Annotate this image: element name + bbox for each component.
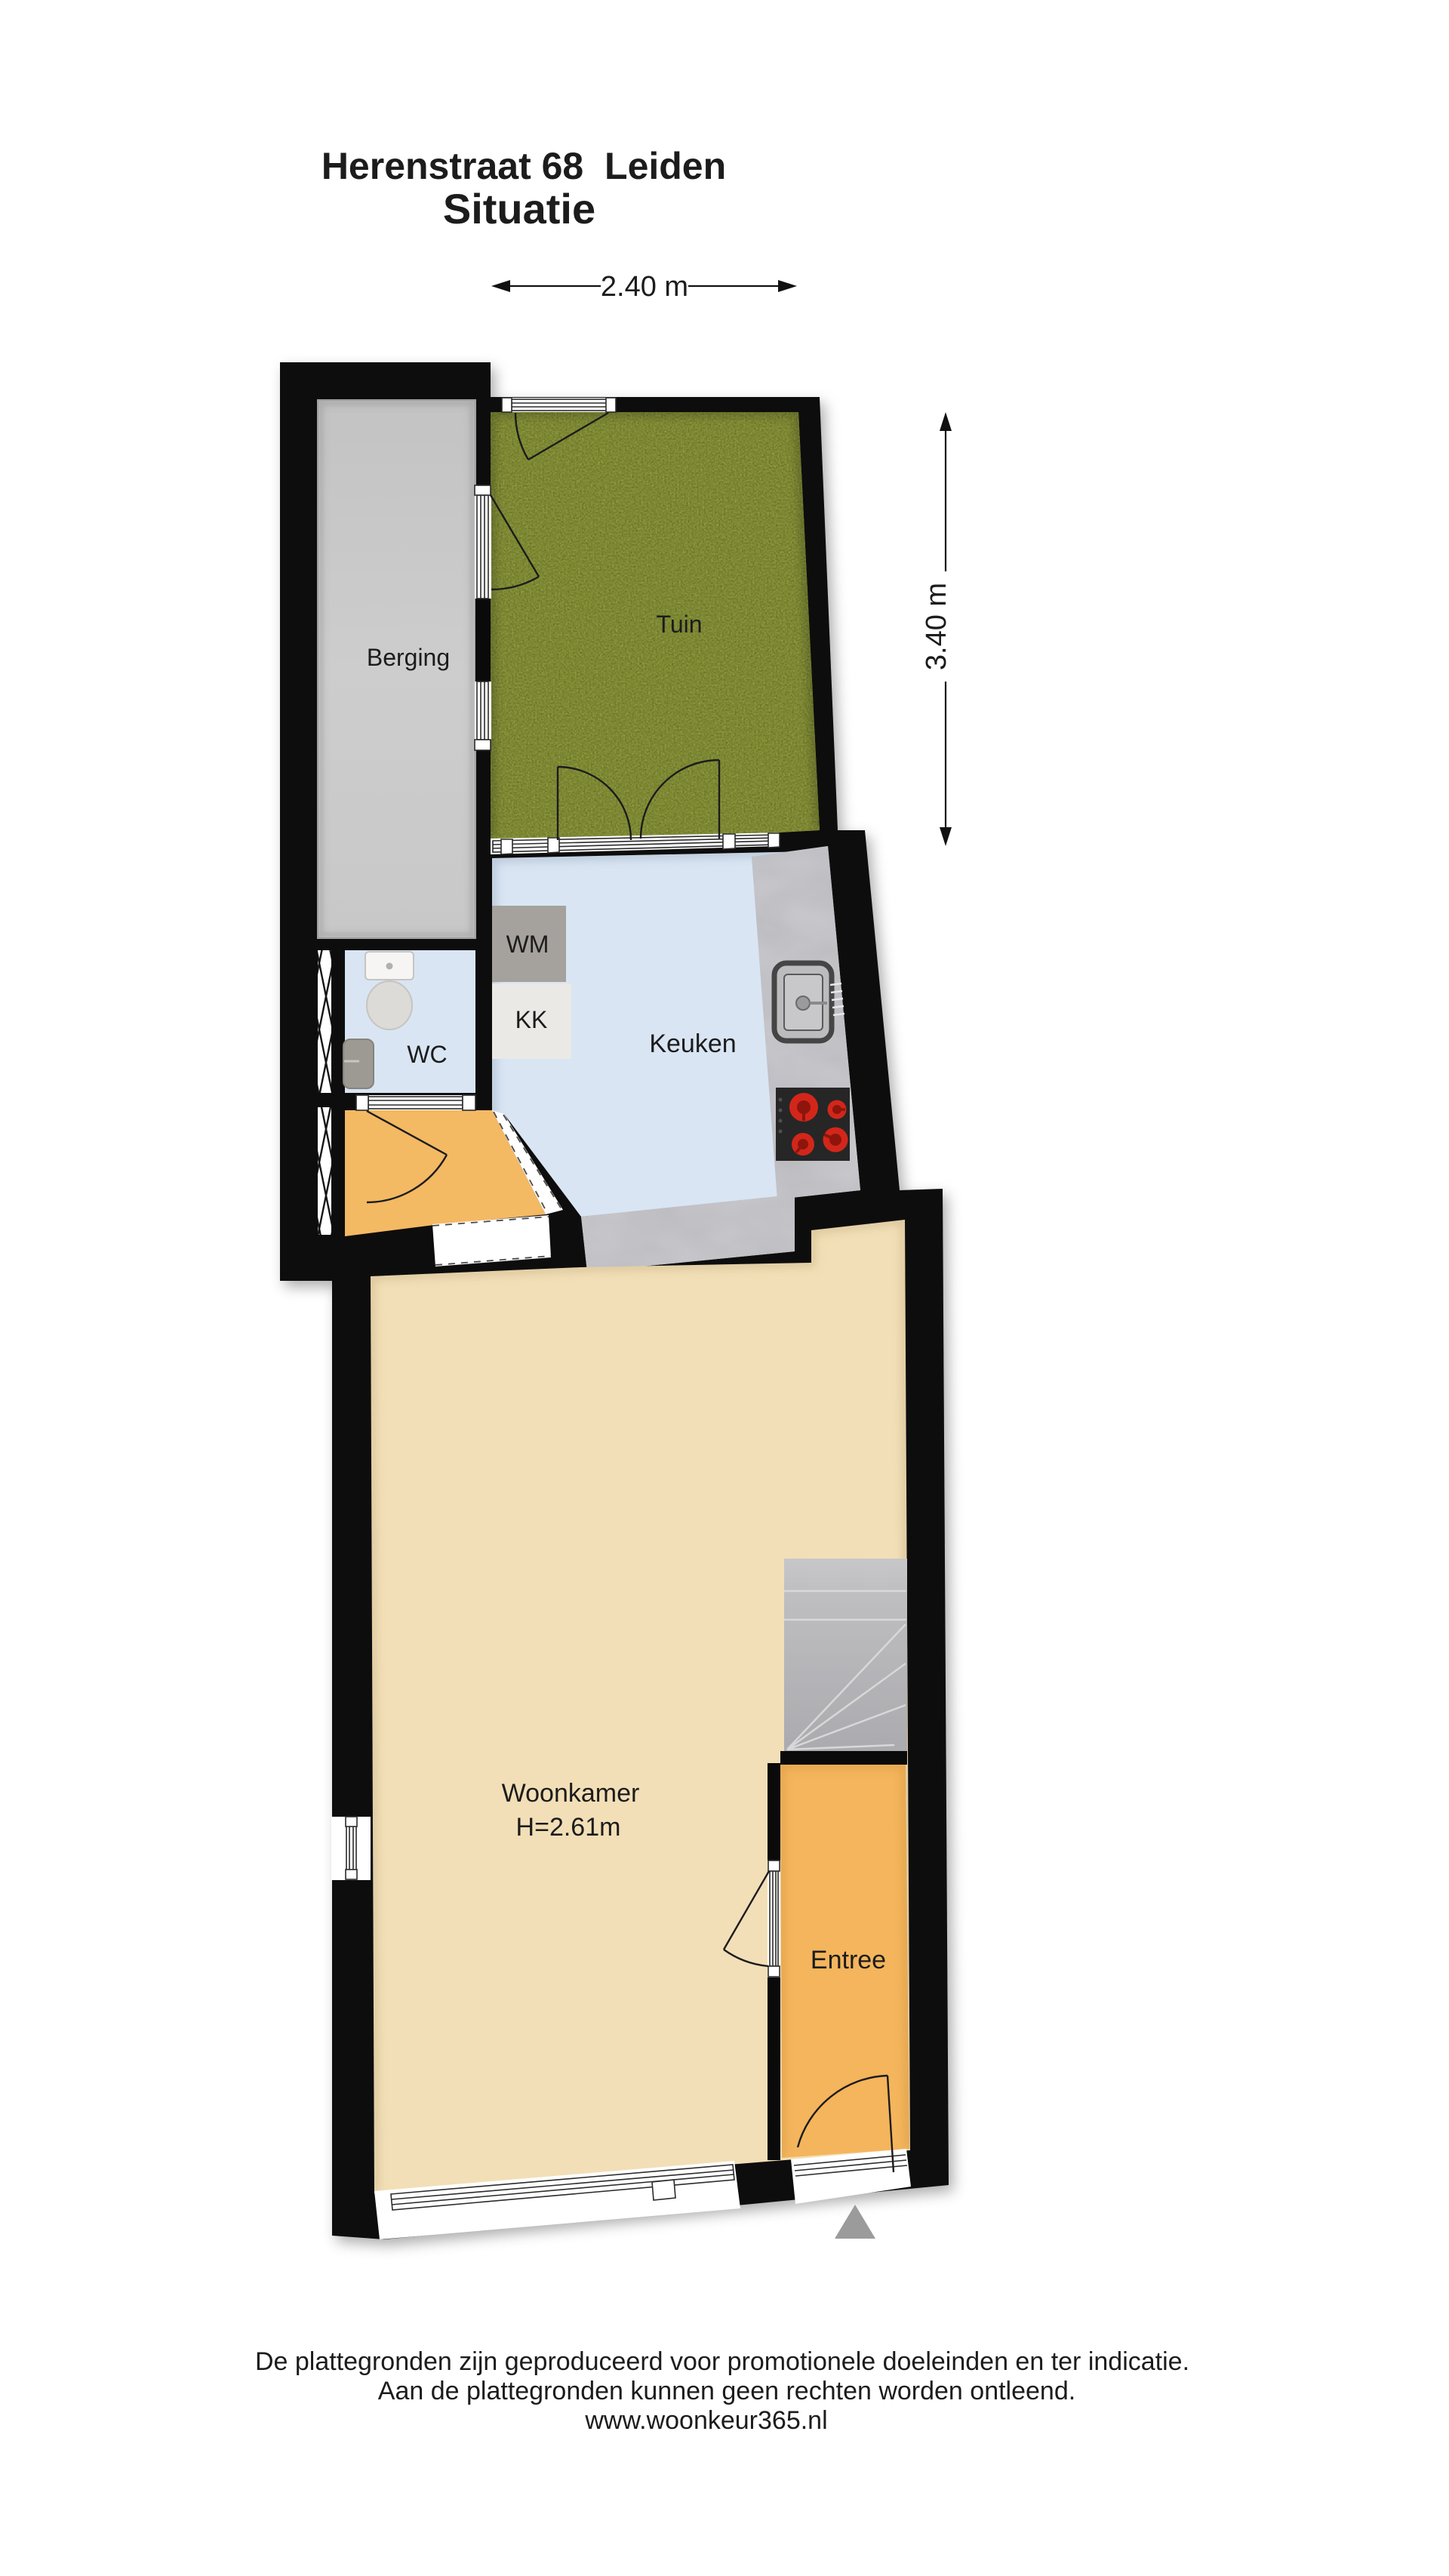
svg-text:3.40 m: 3.40 m: [921, 583, 952, 670]
svg-text:WC: WC: [407, 1041, 447, 1068]
svg-text:2.40 m: 2.40 m: [601, 271, 688, 303]
svg-text:Berging: Berging: [367, 644, 450, 671]
svg-text:Woonkamer: Woonkamer: [502, 1779, 640, 1808]
svg-text:www.woonkeur365.nl: www.woonkeur365.nl: [584, 2406, 827, 2435]
svg-text:Herenstraat 68 Leiden: Herenstraat 68 Leiden: [321, 145, 726, 187]
svg-text:Keuken: Keuken: [649, 1029, 736, 1058]
svg-text:Aan de plattegronden kunnen ge: Aan de plattegronden kunnen geen rechten…: [378, 2377, 1075, 2405]
svg-text:Tuin: Tuin: [656, 611, 702, 638]
svg-text:KK: KK: [515, 1006, 548, 1033]
svg-text:H=2.61m: H=2.61m: [516, 1813, 621, 1842]
svg-text:WM: WM: [506, 931, 549, 958]
svg-text:Situatie: Situatie: [443, 185, 595, 232]
svg-text:De plattegronden zijn geproduc: De plattegronden zijn geproduceerd voor …: [255, 2347, 1189, 2376]
svg-text:Entree: Entree: [811, 1946, 886, 1974]
